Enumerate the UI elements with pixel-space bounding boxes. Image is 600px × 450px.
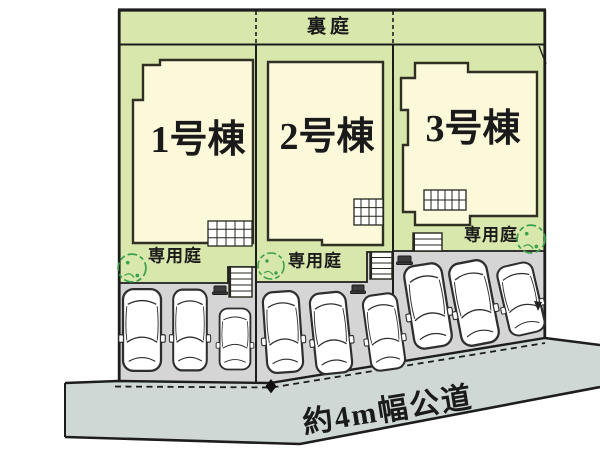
car-icon [119,289,166,371]
car-icon [169,290,210,371]
balcony-grid-1 [208,221,252,246]
car-icon [216,308,254,369]
back-garden-label: 裏庭 [307,18,353,37]
private-garden-label-3: 専用庭 [464,227,518,244]
building-2-label: 2号棟 [279,118,374,156]
balcony-grid-3 [424,190,466,210]
site-plan: 裏庭 1号棟 2号棟 3号棟 専用庭 専用庭 専用庭 約4m幅公道 [0,0,600,450]
stairs-lot-1 [229,267,252,297]
building-3-label: 3号棟 [425,110,520,148]
balcony-grid-2 [354,199,383,225]
private-garden-label-2: 専用庭 [288,253,342,270]
building-1-label: 1号棟 [150,121,245,159]
meter-icon-lot-2 [351,285,366,294]
meter-icon-lot-1 [213,286,228,295]
meter-icon-lot-3 [397,256,413,265]
stairs-lot-2 [370,252,392,279]
stairs-lot-3 [413,233,442,251]
private-garden-label-1: 専用庭 [148,248,202,265]
